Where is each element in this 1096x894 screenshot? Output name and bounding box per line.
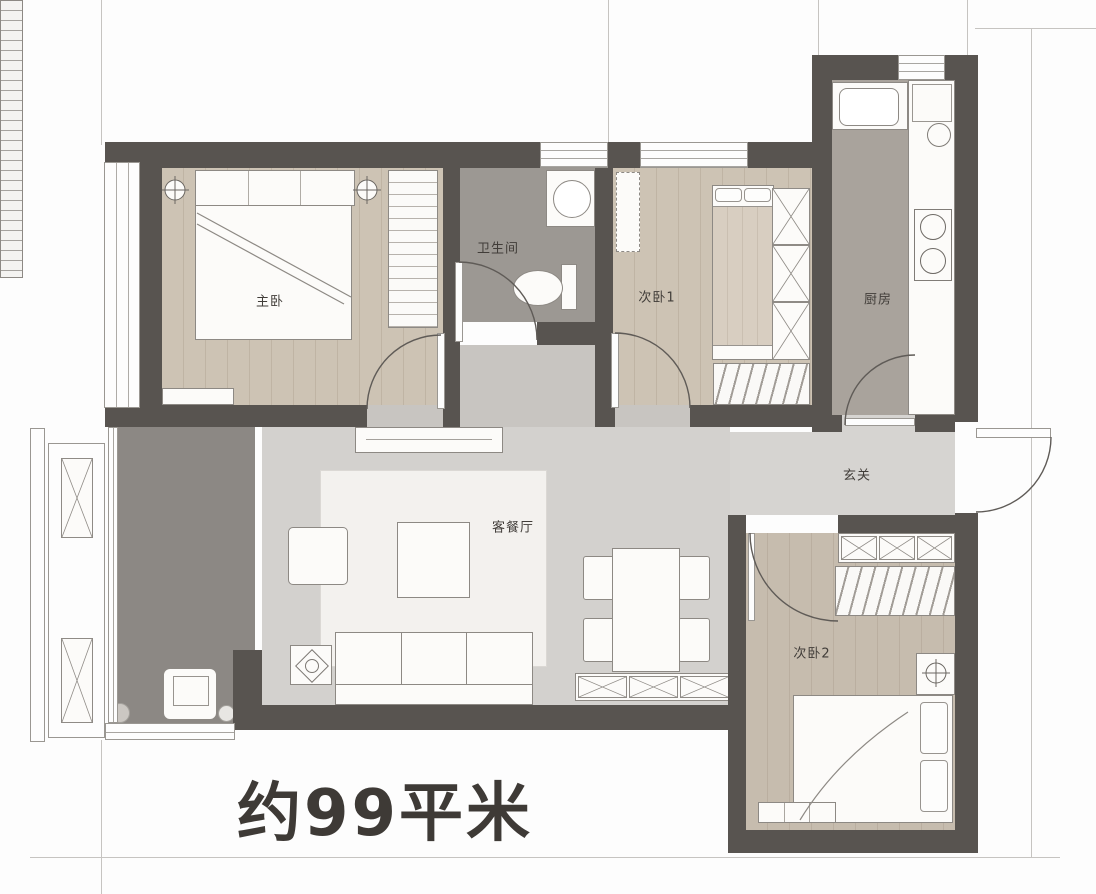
kitchen-side-counter xyxy=(908,80,955,415)
coffee-table xyxy=(397,522,470,598)
side-table xyxy=(290,645,332,685)
bathroom-door-leaf xyxy=(455,262,463,342)
ac-unit-panel xyxy=(61,638,93,723)
toilet-icon xyxy=(513,270,563,306)
room-label-bedroom-2: 次卧2 xyxy=(793,643,830,662)
entrance-door-leaf xyxy=(976,428,1051,438)
wall xyxy=(838,515,955,533)
wall xyxy=(608,142,640,168)
bedroom2-wardrobe-panel xyxy=(917,536,952,560)
wall xyxy=(233,705,730,730)
room-label-kitchen: 厨房 xyxy=(864,289,892,308)
wall xyxy=(832,55,898,80)
balcony-sliding-door xyxy=(0,0,23,278)
bedroom1-desk xyxy=(616,172,640,252)
sofa xyxy=(335,632,533,705)
bedroom2-door-leaf xyxy=(748,533,755,621)
dining-table xyxy=(612,548,680,672)
wall xyxy=(595,405,615,427)
wall xyxy=(748,142,812,168)
sideboard-panel xyxy=(629,676,678,698)
wall xyxy=(812,168,832,415)
balcony-glazing xyxy=(108,427,118,723)
area-label: 约99平米 xyxy=(237,762,533,854)
bedroom1-door-leaf xyxy=(611,333,619,408)
bedroom2-wardrobe-panel xyxy=(841,536,877,560)
wall-lamp-icon xyxy=(352,175,382,205)
bedroom2-wardrobe-panel xyxy=(879,536,915,560)
bedroom1-wardrobe-panel xyxy=(772,245,810,302)
room-label-bathroom: 卫生间 xyxy=(477,238,519,257)
hallway-floor xyxy=(460,345,595,432)
extension-line xyxy=(30,857,1060,858)
bedroom1-bed xyxy=(712,185,774,360)
sideboard-panel xyxy=(680,676,729,698)
extension-line xyxy=(818,0,819,55)
dining-chair xyxy=(678,556,710,600)
ceiling-light-icon xyxy=(921,658,951,688)
room-label-foyer: 玄关 xyxy=(843,465,871,484)
extension-line xyxy=(608,0,609,142)
wall xyxy=(690,405,812,427)
dining-chair xyxy=(583,618,615,662)
extension-line xyxy=(101,740,102,894)
room-label-living-dining: 客餐厅 xyxy=(492,517,534,536)
room-label-master-bedroom: 主卧 xyxy=(256,291,284,310)
kitchen-sink-counter xyxy=(832,82,908,130)
armchair xyxy=(288,527,348,585)
extension-line xyxy=(101,0,102,145)
toilet-tank xyxy=(561,264,577,310)
extension-line xyxy=(975,28,1096,29)
wall xyxy=(955,80,978,422)
wall xyxy=(945,55,978,80)
master-dresser xyxy=(162,388,234,405)
bay-window xyxy=(104,162,140,408)
ac-unit-panel xyxy=(61,458,93,538)
balcony-rail xyxy=(105,723,235,740)
master-wardrobe xyxy=(388,170,438,328)
wall xyxy=(728,515,746,830)
wall xyxy=(812,415,842,432)
extension-line xyxy=(1031,28,1032,858)
dining-chair xyxy=(678,618,710,662)
tv-console xyxy=(355,427,503,453)
wall xyxy=(812,55,832,168)
window xyxy=(898,55,945,80)
room-label-bedroom-1: 次卧1 xyxy=(638,287,675,306)
bedroom2-hanger-rod xyxy=(835,566,955,616)
floor-plan: 主卧 卫生间 次卧1 厨房 玄关 客餐厅 次卧2 约99平米 xyxy=(0,0,1096,894)
window xyxy=(640,142,748,168)
entrance-door-arc xyxy=(976,437,1051,512)
wall-lamp-icon xyxy=(160,175,190,205)
dining-chair xyxy=(583,556,615,600)
wall xyxy=(728,830,978,853)
master-headboard xyxy=(195,170,355,206)
window xyxy=(540,142,608,168)
balcony-chair xyxy=(163,668,217,720)
sideboard-panel xyxy=(578,676,627,698)
master-bed xyxy=(195,205,352,340)
wall xyxy=(233,650,262,705)
bedroom1-hanger-rod xyxy=(713,363,810,405)
wall xyxy=(140,142,162,422)
bedroom1-wardrobe-panel xyxy=(772,188,810,245)
exterior-ledge xyxy=(30,428,45,742)
bedroom2-dresser xyxy=(758,802,836,823)
wall xyxy=(443,405,460,427)
wall xyxy=(955,513,978,853)
bedroom1-wardrobe-panel xyxy=(772,302,810,360)
wall xyxy=(443,142,540,168)
bathroom-vanity xyxy=(546,170,595,227)
master-door-leaf xyxy=(437,333,445,409)
stove-icon xyxy=(914,209,952,281)
kitchen-door-leaf xyxy=(845,418,915,426)
wall xyxy=(915,415,955,432)
